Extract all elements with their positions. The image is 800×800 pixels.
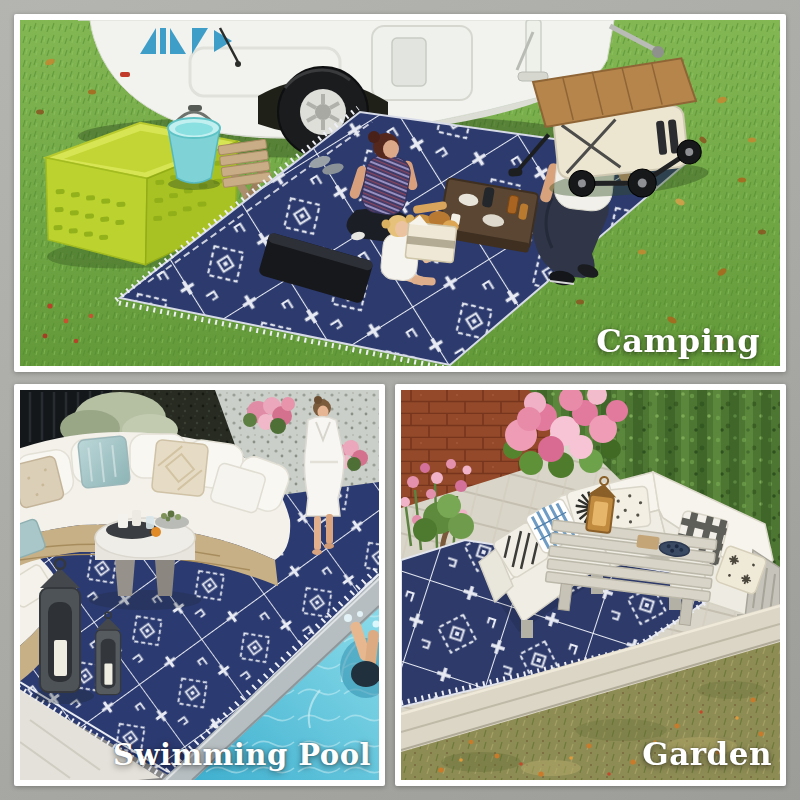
camping-scene-illustration: [20, 20, 780, 366]
coffee-table: [89, 510, 201, 610]
panel-swimming-pool: Swimming Pool: [14, 384, 385, 786]
garden-scene-illustration: [401, 390, 780, 780]
swimming-pool-scene-illustration: [20, 390, 379, 780]
product-collage: Camping: [0, 0, 800, 800]
panel-garden: Garden: [395, 384, 786, 786]
panel-camping: Camping: [14, 14, 786, 372]
